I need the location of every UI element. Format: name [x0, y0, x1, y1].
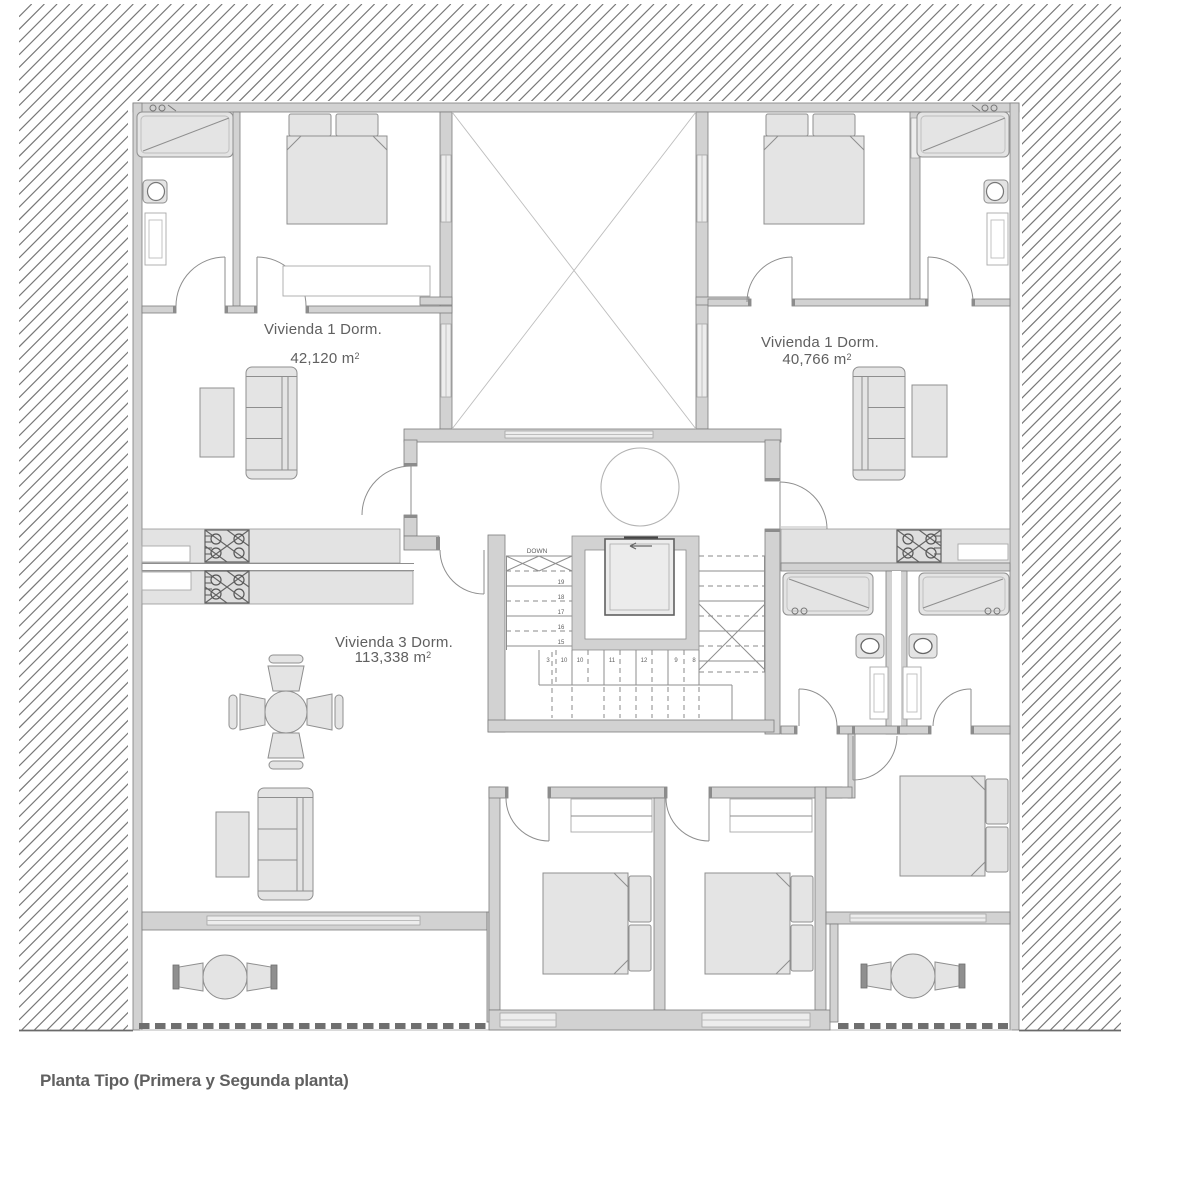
svg-text:Vivienda 1 Dorm.: Vivienda 1 Dorm. [264, 321, 382, 338]
svg-text:40,766 m2: 40,766 m2 [782, 351, 851, 368]
svg-text:DOWN: DOWN [527, 548, 548, 555]
svg-text:42,120 m2: 42,120 m2 [290, 350, 359, 367]
svg-text:113,338 m2: 113,338 m2 [355, 649, 432, 666]
svg-text:16: 16 [558, 625, 565, 631]
svg-text:10: 10 [577, 658, 584, 664]
svg-text:15: 15 [558, 640, 565, 646]
svg-text:Vivienda 1 Dorm.: Vivienda 1 Dorm. [761, 334, 879, 351]
svg-text:19: 19 [558, 580, 565, 586]
svg-text:Planta Tipo (Primera y Segunda: Planta Tipo (Primera y Segunda planta) [40, 1071, 349, 1090]
svg-text:17: 17 [558, 610, 565, 616]
svg-text:11: 11 [609, 658, 616, 664]
svg-text:18: 18 [558, 595, 565, 601]
svg-text:10: 10 [561, 658, 568, 664]
svg-text:12: 12 [641, 658, 648, 664]
